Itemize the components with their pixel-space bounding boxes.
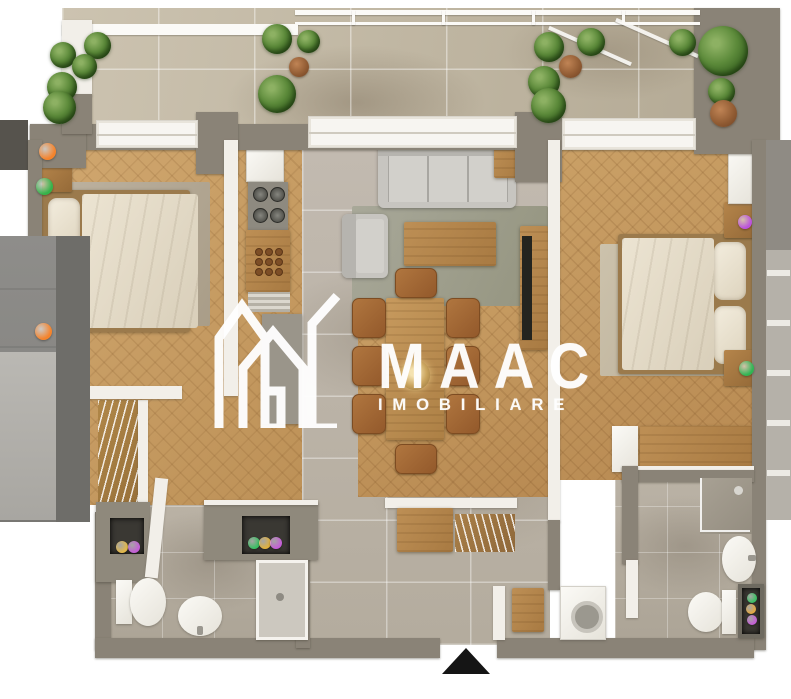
bath2-door-leaf bbox=[626, 560, 638, 618]
entry-shelf bbox=[385, 498, 517, 508]
neighbor-dark-column bbox=[56, 236, 90, 522]
living-armchair bbox=[342, 214, 388, 278]
spice-jar bbox=[265, 258, 273, 266]
sofa-seat-cushion bbox=[428, 156, 468, 202]
washer-door bbox=[571, 601, 603, 633]
potted-plant bbox=[72, 54, 97, 79]
bath1-toilet-bowl bbox=[130, 578, 166, 626]
hall-east-wall bbox=[548, 520, 560, 590]
bath1-shower-tray bbox=[256, 560, 308, 640]
balcony-rail-post bbox=[442, 10, 445, 25]
window-mullion bbox=[563, 134, 695, 136]
closet-upper bbox=[766, 140, 791, 250]
hotspot-bath1-niche-yellow[interactable] bbox=[116, 541, 128, 553]
entry-door-leaf bbox=[512, 588, 544, 632]
balcony-railing-bar bbox=[295, 22, 700, 25]
spice-jar bbox=[275, 268, 283, 276]
bedroom1-wardrobe-hangers bbox=[98, 400, 138, 510]
dining-chair-top bbox=[395, 268, 437, 298]
hotspot-bath2-niche-purple[interactable] bbox=[747, 615, 757, 625]
entry-coat-rack bbox=[455, 514, 515, 552]
south-wall-right bbox=[497, 638, 754, 658]
closet-shelf bbox=[767, 470, 790, 476]
hotspot-bedroom2-green[interactable] bbox=[739, 361, 754, 376]
hotspot-bath2-niche-orange[interactable] bbox=[746, 604, 756, 614]
sofa-seat-cushion bbox=[388, 156, 428, 202]
plant-pot bbox=[710, 100, 737, 127]
stove-burner-icon bbox=[270, 187, 285, 202]
closet-strip-right bbox=[766, 140, 791, 520]
logo-mark-icon bbox=[213, 288, 343, 428]
faucet-icon bbox=[197, 626, 203, 635]
dining-chair-bottom bbox=[395, 444, 437, 474]
bedroom2-pillow-top bbox=[714, 242, 746, 300]
potted-plant bbox=[262, 24, 292, 54]
spice-jar bbox=[255, 268, 263, 276]
stove-burner-icon bbox=[270, 208, 285, 223]
bath2-sink bbox=[722, 536, 756, 582]
potted-plant bbox=[669, 29, 696, 56]
hotspot-bedroom1-green[interactable] bbox=[36, 178, 53, 195]
bath2-toilet-tank bbox=[722, 590, 736, 634]
potted-plant bbox=[43, 91, 76, 124]
shower-head-icon bbox=[734, 486, 743, 495]
hotspot-hall-niche-purple[interactable] bbox=[270, 537, 282, 549]
floorplan-canvas: MAAC IMOBILIARE bbox=[0, 0, 791, 699]
potted-plant bbox=[531, 88, 566, 123]
entrance-arrow bbox=[442, 648, 490, 674]
living-coffee-table bbox=[404, 222, 496, 266]
exterior-block-topleft bbox=[0, 120, 28, 170]
stove-burner-icon bbox=[253, 208, 268, 223]
balcony-rail-post bbox=[352, 10, 355, 25]
bedroom2-window bbox=[562, 118, 696, 150]
plant-pot bbox=[289, 57, 309, 77]
south-wall-left bbox=[95, 638, 440, 658]
window-mullion bbox=[309, 132, 516, 134]
plant-pot bbox=[559, 55, 582, 78]
spice-jar bbox=[255, 258, 263, 266]
bedroom2-bed-duvet bbox=[622, 238, 714, 370]
bedroom1-window bbox=[96, 120, 198, 148]
logo-tagline-text: IMOBILIARE bbox=[378, 396, 574, 413]
faucet-icon bbox=[748, 555, 756, 561]
hotspot-bedroom2-purple[interactable] bbox=[738, 215, 752, 229]
kitchen-stove-counter bbox=[248, 182, 288, 230]
armchair-seat bbox=[356, 219, 384, 273]
balcony-railing-top bbox=[295, 10, 700, 15]
spice-jar bbox=[265, 268, 273, 276]
kitchen-fridge bbox=[246, 146, 284, 182]
living-balcony-door bbox=[308, 116, 517, 148]
armchair-back bbox=[342, 214, 356, 278]
potted-plant bbox=[698, 26, 748, 76]
neighbor-panel bbox=[0, 352, 56, 520]
potted-plant bbox=[258, 75, 296, 113]
shower-glass bbox=[700, 478, 750, 532]
east-exterior-wall bbox=[752, 140, 766, 650]
closet-shelf bbox=[767, 420, 790, 426]
entry-wall-stub bbox=[493, 586, 505, 640]
closet-shelf bbox=[767, 320, 790, 326]
spice-jar bbox=[275, 258, 283, 266]
potted-plant bbox=[297, 30, 320, 53]
washing-machine bbox=[560, 586, 606, 640]
hotspot-bath2-niche-green[interactable] bbox=[747, 593, 757, 603]
bath2-toilet-bowl bbox=[688, 592, 724, 632]
bedroom1-bed-duvet bbox=[82, 194, 198, 328]
spice-jar bbox=[275, 248, 283, 256]
shower-drain-icon bbox=[276, 593, 284, 601]
tv-screen bbox=[522, 236, 532, 340]
bedroom1-wardrobe-side bbox=[138, 400, 148, 510]
bath2-shower bbox=[700, 478, 752, 534]
potted-plant bbox=[534, 32, 564, 62]
hotspot-bath1-niche-purple[interactable] bbox=[128, 541, 140, 553]
closet-shelf bbox=[767, 270, 790, 276]
bathroom2-west-wall bbox=[622, 466, 638, 564]
bath1-cabinet-edge bbox=[204, 500, 318, 505]
window-mullion bbox=[97, 134, 197, 136]
balcony-rail-post bbox=[532, 10, 535, 25]
bath1-sink bbox=[178, 596, 222, 636]
spice-jar bbox=[265, 248, 273, 256]
entry-cabinet bbox=[397, 508, 453, 552]
logo-brand-text: MAAC bbox=[378, 334, 603, 398]
kitchen-counter bbox=[246, 230, 290, 292]
closet-shelf bbox=[767, 370, 790, 376]
potted-plant bbox=[577, 28, 605, 56]
hotspot-bedroom1-orange-top[interactable] bbox=[39, 143, 56, 160]
spice-jar bbox=[255, 248, 263, 256]
hotspot-bedroom1-orange-bottom[interactable] bbox=[35, 323, 52, 340]
stove-burner-icon bbox=[253, 187, 268, 202]
